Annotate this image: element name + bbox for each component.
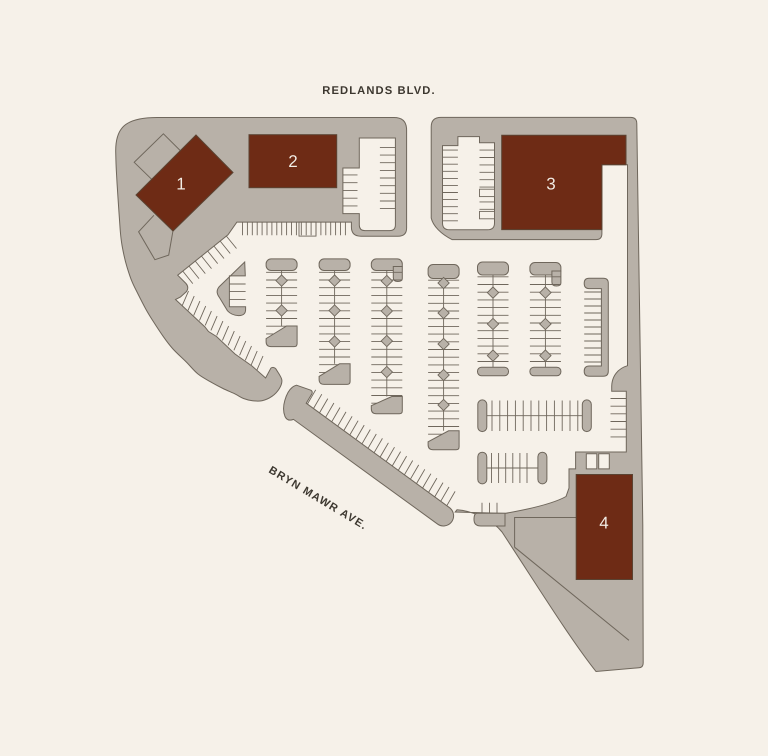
svg-text:REDLANDS BLVD.: REDLANDS BLVD. — [322, 85, 435, 97]
